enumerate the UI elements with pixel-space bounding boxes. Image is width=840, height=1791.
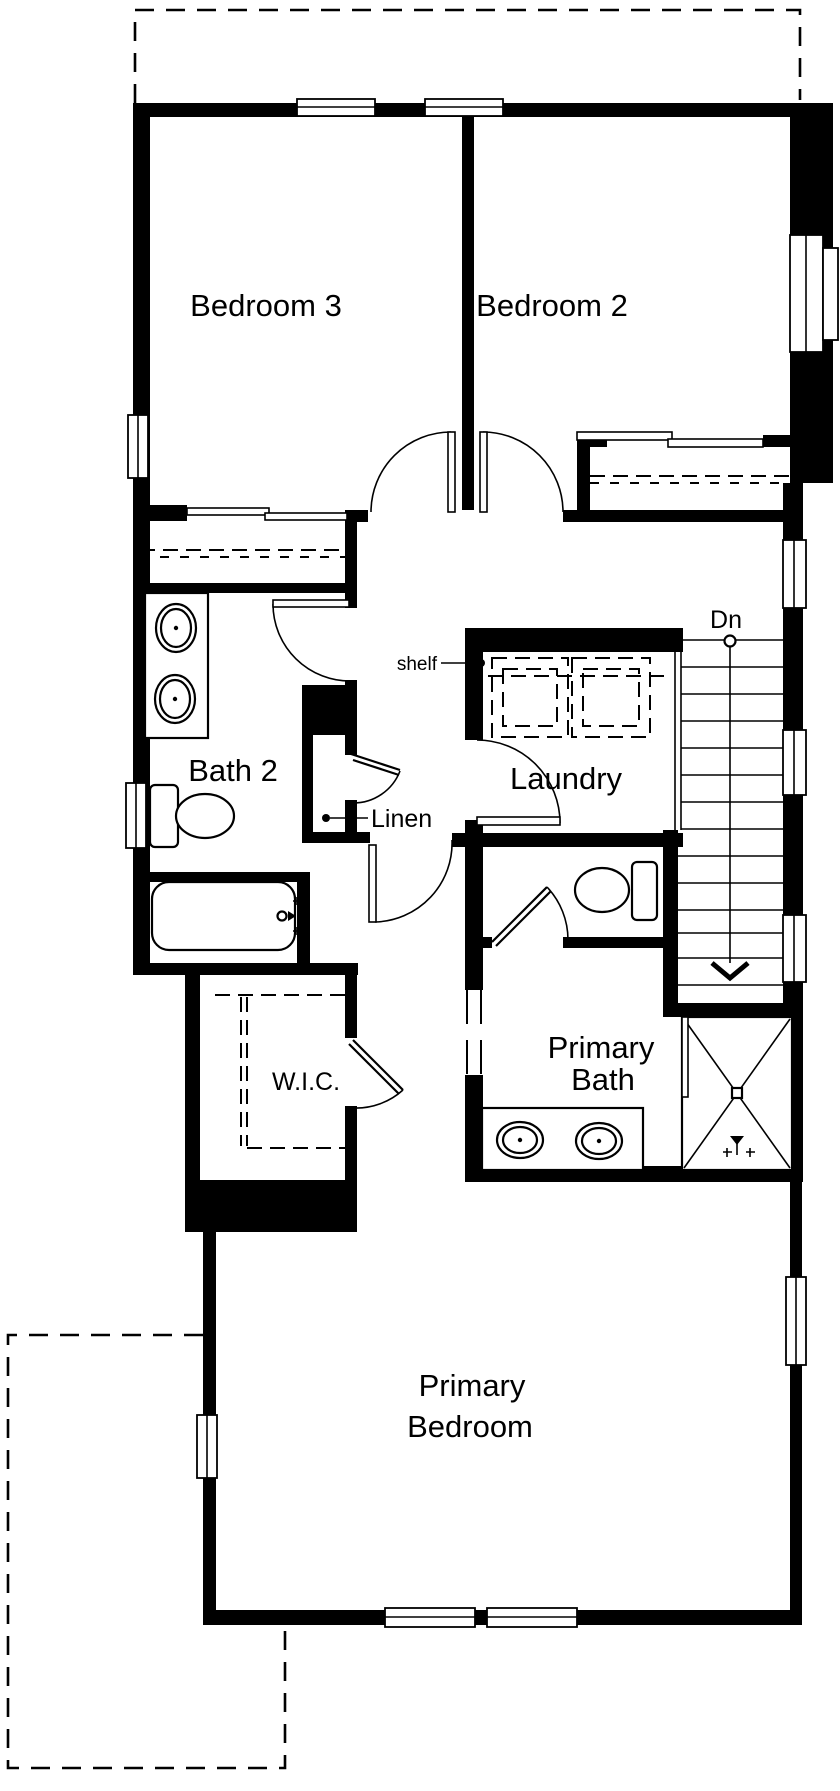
window-bath2-left bbox=[126, 783, 146, 848]
closet-door-bedroom3 bbox=[187, 508, 347, 520]
door-bedroom3 bbox=[371, 432, 455, 512]
door-bedroom2 bbox=[480, 432, 563, 512]
door-bath2 bbox=[273, 600, 351, 681]
primary-vanity bbox=[482, 1108, 643, 1170]
roof-outline-dashed bbox=[135, 10, 800, 103]
window-bedroom2-right bbox=[790, 235, 838, 352]
label-laundry: Laundry bbox=[510, 761, 623, 796]
toilet-icon bbox=[150, 785, 234, 847]
label-primary-bath-1: Primary bbox=[548, 1030, 655, 1065]
stairs bbox=[675, 628, 783, 985]
window-bedroom2-top bbox=[425, 99, 503, 116]
window-stairs-right-3 bbox=[783, 915, 806, 982]
window-primary-left bbox=[197, 1415, 217, 1478]
label-primary-bedroom-2: Bedroom bbox=[407, 1409, 533, 1444]
cased-opening-dashed bbox=[467, 990, 481, 1075]
floor-plan-drawing: Bedroom 3 Bedroom 2 Bath 2 Laundry shelf… bbox=[0, 0, 840, 1791]
stair-direction-start bbox=[725, 636, 736, 647]
bath2-vanity bbox=[145, 593, 208, 738]
dryer-box bbox=[572, 658, 650, 737]
label-bath2: Bath 2 bbox=[188, 753, 278, 788]
closet-doors bbox=[187, 432, 763, 520]
label-linen: Linen bbox=[371, 805, 432, 833]
window-bedroom3-top bbox=[297, 99, 375, 116]
window-stairs-right-2 bbox=[783, 730, 806, 795]
sink-icon bbox=[155, 675, 195, 723]
window-bedroom3-left bbox=[128, 415, 148, 478]
window-stairs-right-1 bbox=[783, 540, 806, 608]
sink-icon bbox=[497, 1122, 543, 1158]
shower-icon bbox=[682, 1017, 792, 1170]
window-primary-bottom-2 bbox=[487, 1608, 577, 1627]
label-primary-bedroom-1: Primary bbox=[419, 1368, 526, 1403]
stair-down-arrow bbox=[712, 963, 748, 978]
window-primary-right bbox=[786, 1277, 806, 1365]
door-primary-bath-vestibule bbox=[492, 887, 568, 946]
bathtub-icon bbox=[152, 882, 301, 950]
label-bedroom3: Bedroom 3 bbox=[190, 288, 342, 323]
label-bedroom2: Bedroom 2 bbox=[476, 288, 628, 323]
deck-outline-dashed bbox=[8, 1335, 285, 1768]
door-hall-passage bbox=[369, 840, 452, 922]
label-shelf: shelf bbox=[397, 654, 438, 675]
washer-box bbox=[492, 658, 568, 737]
sink-icon bbox=[156, 604, 196, 652]
toilet-icon bbox=[575, 862, 657, 920]
floor-plan-page: Bedroom 3 Bedroom 2 Bath 2 Laundry shelf… bbox=[0, 0, 840, 1791]
label-primary-bath-2: Bath bbox=[571, 1062, 635, 1097]
sink-icon bbox=[576, 1123, 622, 1159]
door-wic bbox=[349, 1040, 403, 1108]
window-primary-bottom-1 bbox=[385, 1608, 475, 1627]
label-wic: W.I.C. bbox=[272, 1068, 340, 1096]
label-stairs-down: Dn bbox=[710, 606, 742, 634]
door-linen bbox=[351, 754, 400, 803]
